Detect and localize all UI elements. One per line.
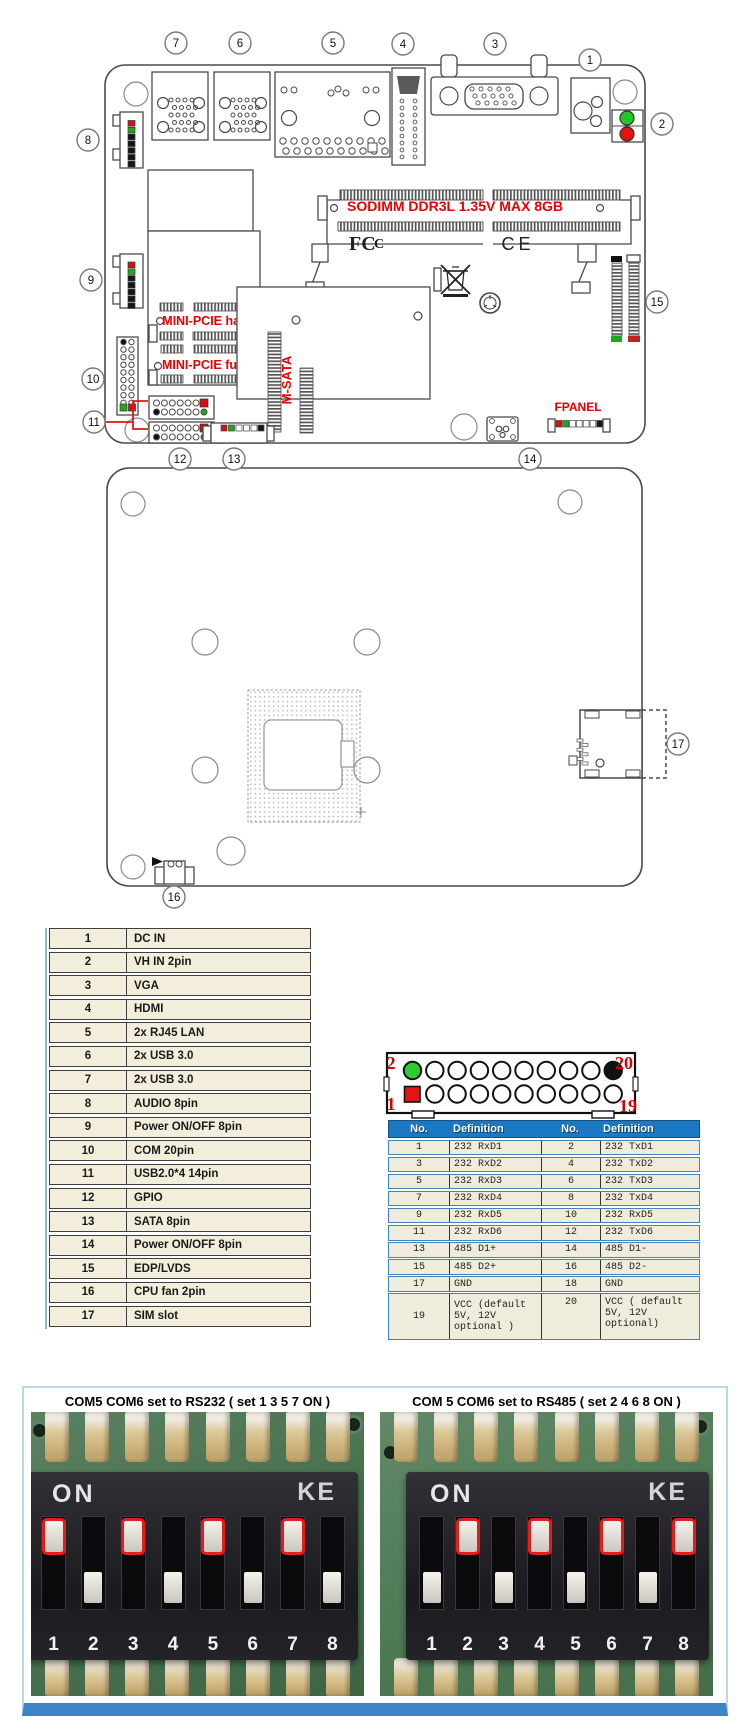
pin-table-row: 19VCC (default 5V, 12V optional )20VCC (…	[388, 1293, 700, 1340]
dip-slot-8	[320, 1516, 345, 1610]
dip-number: 8	[671, 1634, 696, 1656]
item-table-row: 17SIM slot	[49, 1306, 311, 1327]
item-number: 1	[50, 929, 126, 948]
callout-14: 14	[519, 448, 541, 470]
svg-text:14: 14	[524, 454, 537, 466]
item-name: 2x USB 3.0	[126, 1071, 310, 1090]
pin-number: 2	[541, 1141, 600, 1155]
dip-number: 8	[320, 1634, 345, 1656]
dip-rs232-title: COM5 COM6 set to RS232 ( set 1 3 5 7 ON …	[31, 1392, 364, 1412]
pin-definition: 232 RxD2	[449, 1158, 541, 1172]
pin-table-row: 15485 D2+16485 D2-	[388, 1259, 700, 1275]
dip-number: 3	[121, 1634, 146, 1656]
callout-11: 11	[83, 411, 105, 433]
dip-switch-panel: COM5 COM6 set to RS232 ( set 1 3 5 7 ON …	[22, 1386, 728, 1716]
dc-in-jack	[571, 78, 610, 133]
dip-slots	[41, 1516, 345, 1610]
solder-pin	[474, 1412, 498, 1462]
svg-text:13: 13	[228, 454, 241, 466]
svg-text:M-SATA: M-SATA	[279, 355, 294, 404]
svg-text:5: 5	[330, 38, 336, 50]
pin-table-header-no2: No.	[541, 1123, 599, 1135]
solder-pin	[206, 1658, 230, 1696]
item-name: USB2.0*4 14pin	[126, 1165, 310, 1184]
com-pin-header-diagram: 220119	[384, 1053, 638, 1118]
dip-rs485-column: COM 5 COM6 set to RS485 ( set 2 4 6 8 ON…	[380, 1392, 713, 1696]
pin-table-row: 3232 RxD24232 TxD2	[388, 1157, 700, 1173]
dip-rs232-column: COM5 COM6 set to RS232 ( set 1 3 5 7 ON …	[31, 1392, 364, 1696]
item-name: Power ON/OFF 8pin	[126, 1118, 310, 1137]
pin-definition: 232 TxD4	[600, 1192, 699, 1206]
svg-text:19: 19	[619, 1096, 637, 1116]
dip-number: 1	[419, 1634, 444, 1656]
solder-pin	[45, 1658, 69, 1696]
dip-slot-6	[599, 1516, 624, 1610]
dip-slot-2	[81, 1516, 106, 1610]
item-number: 11	[50, 1165, 126, 1184]
item-number: 9	[50, 1118, 126, 1137]
svg-text:4: 4	[400, 39, 407, 51]
solder-pin	[326, 1658, 350, 1696]
item-name: Power ON/OFF 8pin	[126, 1236, 310, 1255]
item-number: 14	[50, 1236, 126, 1255]
item-name: DC IN	[126, 929, 310, 948]
pin-number: 18	[541, 1277, 600, 1291]
solder-pin	[165, 1658, 189, 1696]
dip-number: 2	[81, 1634, 106, 1656]
pin-number: 11	[389, 1226, 449, 1240]
solder-pin	[246, 1658, 270, 1696]
cpu-bga	[248, 690, 366, 822]
dip-numbers-row: 12345678	[419, 1634, 696, 1656]
item-table-row: 13SATA 8pin	[49, 1211, 311, 1232]
dip-number: 5	[200, 1634, 225, 1656]
pin-number: 12	[541, 1226, 600, 1240]
svg-text:1: 1	[387, 1094, 396, 1114]
svg-text:3: 3	[492, 39, 498, 51]
callout-7: 7	[165, 32, 187, 54]
svg-text:C: C	[374, 237, 384, 252]
dip-on-label: ON	[52, 1480, 96, 1509]
solder-pins-row	[394, 1658, 699, 1696]
svg-text:2: 2	[659, 119, 665, 131]
power-led-block	[612, 110, 643, 142]
pin-definition: 232 RxD5	[600, 1209, 699, 1223]
dip-slot-1	[41, 1516, 66, 1610]
solder-pin	[246, 1412, 270, 1462]
pin-number: 19	[389, 1294, 449, 1339]
dip-slot-4	[161, 1516, 186, 1610]
item-number: 16	[50, 1283, 126, 1302]
item-name: CPU fan 2pin	[126, 1283, 310, 1302]
dip-slider-3	[124, 1521, 142, 1552]
svg-text:FPANEL: FPANEL	[554, 400, 601, 414]
svg-text:CE: CE	[501, 234, 534, 254]
item-name: EDP/LVDS	[126, 1259, 310, 1278]
svg-text:1: 1	[587, 55, 593, 67]
solder-pin	[286, 1412, 310, 1462]
svg-text:17: 17	[672, 739, 685, 751]
callout-3: 3	[484, 33, 506, 55]
svg-text:16: 16	[168, 892, 181, 904]
pin-number: 14	[541, 1243, 600, 1257]
dip-slot-7	[635, 1516, 660, 1610]
pin-definition: GND	[600, 1277, 699, 1291]
dip-number: 5	[563, 1634, 588, 1656]
item-table-row: 62x USB 3.0	[49, 1046, 311, 1067]
callout-16: 16	[163, 886, 185, 908]
dip-slot-5	[563, 1516, 588, 1610]
dip-switch-body: ONKE12345678	[406, 1472, 709, 1660]
solder-pin	[514, 1658, 538, 1696]
power-button	[487, 417, 518, 441]
dip-slider-2	[84, 1572, 102, 1603]
solder-pin	[85, 1658, 109, 1696]
item-table-row: 52x RJ45 LAN	[49, 1022, 311, 1043]
item-number: 4	[50, 1000, 126, 1019]
dip-slot-7	[280, 1516, 305, 1610]
pin-table-row: 11232 RxD612232 TxD6	[388, 1225, 700, 1241]
item-name: SIM slot	[126, 1307, 310, 1326]
pin-table-header-def2: Definition	[599, 1123, 699, 1135]
callout-1: 1	[579, 49, 601, 71]
callout-4: 4	[392, 33, 414, 55]
dip-number: 4	[161, 1634, 186, 1656]
item-table-row: 72x USB 3.0	[49, 1070, 311, 1091]
dip-slider-6	[244, 1572, 262, 1603]
item-number: 13	[50, 1212, 126, 1231]
item-name: COM 20pin	[126, 1141, 310, 1160]
board-bottom-outline	[107, 468, 642, 886]
dip-number: 7	[635, 1634, 660, 1656]
svg-text:8: 8	[85, 135, 91, 147]
dip-slider-7	[284, 1521, 302, 1552]
connector-index-table: 1DC IN2VH IN 2pin3VGA4HDMI52x RJ45 LAN62…	[45, 928, 311, 1329]
solder-pin	[165, 1412, 189, 1462]
sata-header	[203, 423, 274, 443]
dip-slider-2	[459, 1521, 477, 1552]
pin-definition: 232 RxD6	[449, 1226, 541, 1240]
pin-number: 8	[541, 1192, 600, 1206]
solder-pin	[434, 1412, 458, 1462]
solder-pin	[595, 1658, 619, 1696]
pin-definition: 232 RxD1	[449, 1141, 541, 1155]
pin-number: 17	[389, 1277, 449, 1291]
pin-definition: VCC (default 5V, 12V optional )	[449, 1294, 541, 1339]
svg-text:FC: FC	[349, 233, 376, 255]
svg-text:9: 9	[88, 275, 94, 287]
item-table-row: 16CPU fan 2pin	[49, 1282, 311, 1303]
item-number: 6	[50, 1047, 126, 1066]
callout-10: 10	[82, 368, 104, 390]
svg-text:12: 12	[174, 454, 187, 466]
callout-17: 17	[667, 733, 689, 755]
callout-6: 6	[229, 32, 251, 54]
vga-port	[431, 55, 558, 115]
solder-pin	[45, 1412, 69, 1462]
manual-page: SODIMM DDR3L 1.35V MAX 8GBFCCCEMINI-PCIE…	[0, 0, 750, 1729]
solder-pins-row	[394, 1412, 699, 1462]
pin-number: 3	[389, 1158, 449, 1172]
pin-table-row: 13485 D1+14485 D1-	[388, 1242, 700, 1258]
svg-text:6: 6	[237, 38, 243, 50]
pin-definition: 485 D1-	[600, 1243, 699, 1257]
pin-number: 9	[389, 1209, 449, 1223]
solder-pin	[326, 1412, 350, 1462]
dip-slider-1	[423, 1572, 441, 1603]
svg-text:10: 10	[87, 374, 100, 386]
dip-on-label: ON	[430, 1480, 474, 1509]
dip-number: 6	[240, 1634, 265, 1656]
solder-pin	[474, 1658, 498, 1696]
solder-pin	[85, 1412, 109, 1462]
pin-table-row: 5232 RxD36232 TxD3	[388, 1174, 700, 1190]
usb2-header	[149, 396, 214, 419]
dip-brand-label: KE	[297, 1478, 336, 1507]
callout-9: 9	[80, 269, 102, 291]
svg-text:SODIMM DDR3L 1.35V MAX 8GB: SODIMM DDR3L 1.35V MAX 8GB	[347, 198, 563, 214]
solder-pin	[125, 1412, 149, 1462]
solder-pin	[394, 1658, 418, 1696]
item-table-row: 3VGA	[49, 975, 311, 996]
dip-slider-8	[675, 1521, 693, 1552]
item-number: 10	[50, 1141, 126, 1160]
dip-slider-4	[164, 1572, 182, 1603]
dip-number: 6	[599, 1634, 624, 1656]
svg-text:2: 2	[387, 1053, 396, 1073]
dip-number: 1	[41, 1634, 66, 1656]
dip-slider-8	[323, 1572, 341, 1603]
sim-slot	[569, 710, 666, 778]
svg-text:11: 11	[88, 417, 100, 429]
solder-pin	[434, 1658, 458, 1696]
dip-slots	[419, 1516, 696, 1610]
callout-5: 5	[322, 32, 344, 54]
dip-slider-5	[567, 1572, 585, 1603]
pin-table-row: 17GND18GND	[388, 1276, 700, 1292]
com-20pin-header	[117, 337, 138, 415]
pin-number: 1	[389, 1141, 449, 1155]
pin-number: 15	[389, 1260, 449, 1274]
dip-rs232-photo: ONKE12345678	[31, 1412, 364, 1696]
item-number: 7	[50, 1071, 126, 1090]
solder-pin	[555, 1412, 579, 1462]
ce-mark: CE	[501, 234, 534, 254]
solder-pin	[555, 1658, 579, 1696]
pin-definition: 232 RxD4	[449, 1192, 541, 1206]
item-name: 2x USB 3.0	[126, 1047, 310, 1066]
pin-number: 10	[541, 1209, 600, 1223]
pin-number: 6	[541, 1175, 600, 1189]
item-name: SATA 8pin	[126, 1212, 310, 1231]
usb3-stack-6	[214, 72, 270, 140]
item-name: HDMI	[126, 1000, 310, 1019]
dip-slot-3	[121, 1516, 146, 1610]
pin-table-row: 7232 RxD48232 TxD4	[388, 1191, 700, 1207]
solder-pin	[394, 1412, 418, 1462]
dip-number: 4	[527, 1634, 552, 1656]
item-table-row: 14Power ON/OFF 8pin	[49, 1235, 311, 1256]
callout-13: 13	[223, 448, 245, 470]
rj45-lan-ports	[275, 72, 390, 157]
callout-12: 12	[169, 448, 191, 470]
pin-definition: 232 TxD1	[600, 1141, 699, 1155]
item-number: 5	[50, 1023, 126, 1042]
solder-pin	[635, 1658, 659, 1696]
pin-number: 13	[389, 1243, 449, 1257]
pin-definition: 232 RxD3	[449, 1175, 541, 1189]
dip-rs485-photo: ONKE12345678	[380, 1412, 713, 1696]
pin-definition: 232 TxD2	[600, 1158, 699, 1172]
item-number: 2	[50, 953, 126, 972]
pin-definition: GND	[449, 1277, 541, 1291]
item-name: VGA	[126, 976, 310, 995]
pin-table-header-row: No. Definition No. Definition	[388, 1120, 700, 1138]
dip-rs485-title: COM 5 COM6 set to RS485 ( set 2 4 6 8 ON…	[380, 1392, 713, 1412]
pin-definition: 232 TxD6	[600, 1226, 699, 1240]
pin-table-header-no: No.	[389, 1123, 449, 1135]
item-name: AUDIO 8pin	[126, 1094, 310, 1113]
item-number: 12	[50, 1189, 126, 1208]
pin-table-header-def: Definition	[449, 1123, 541, 1135]
item-table-row: 1DC IN	[49, 928, 311, 949]
pin-definition: 232 TxD3	[600, 1175, 699, 1189]
solder-pin	[595, 1412, 619, 1462]
item-name: GPIO	[126, 1189, 310, 1208]
pin-definition: 232 RxD5	[449, 1209, 541, 1223]
pin-number: 5	[389, 1175, 449, 1189]
pin-table-row: 9232 RxD510232 RxD5	[388, 1208, 700, 1224]
pin-definition: 485 D1+	[449, 1243, 541, 1257]
item-table-row: 12GPIO	[49, 1188, 311, 1209]
dip-number: 2	[455, 1634, 480, 1656]
callout-2: 2	[651, 113, 673, 135]
item-number: 8	[50, 1094, 126, 1113]
dip-slot-5	[200, 1516, 225, 1610]
dip-number: 3	[491, 1634, 516, 1656]
shield-box	[148, 170, 253, 231]
item-table-row: 9Power ON/OFF 8pin	[49, 1117, 311, 1138]
pin-definition: VCC ( default 5V, 12V optional)	[600, 1294, 699, 1339]
svg-text:7: 7	[173, 38, 179, 50]
dip-switch-body: ONKE12345678	[31, 1472, 358, 1660]
item-table-row: 15EDP/LVDS	[49, 1258, 311, 1279]
pin-definition: 485 D2+	[449, 1260, 541, 1274]
dip-slot-8	[671, 1516, 696, 1610]
dip-slot-1	[419, 1516, 444, 1610]
dip-numbers-row: 12345678	[41, 1634, 345, 1656]
item-table-row: 4HDMI	[49, 999, 311, 1020]
solder-pin	[635, 1412, 659, 1462]
fcc-logo: FCC	[349, 233, 384, 255]
callout-15: 15	[646, 291, 668, 313]
dip-number: 7	[280, 1634, 305, 1656]
item-number: 17	[50, 1307, 126, 1326]
solder-pin	[206, 1412, 230, 1462]
svg-text:MINI-PCIE full: MINI-PCIE full	[162, 358, 244, 372]
svg-text:20: 20	[615, 1053, 633, 1073]
solder-pin	[125, 1658, 149, 1696]
pin-definition: 485 D2-	[600, 1260, 699, 1274]
dip-brand-label: KE	[648, 1478, 687, 1507]
pin-number: 7	[389, 1192, 449, 1206]
dip-slider-5	[204, 1521, 222, 1552]
solder-pins-row	[45, 1412, 350, 1462]
solder-pin	[675, 1412, 699, 1462]
item-name: 2x RJ45 LAN	[126, 1023, 310, 1042]
pin-table-row: 1232 RxD12232 TxD1	[388, 1140, 700, 1156]
dip-slot-6	[240, 1516, 265, 1610]
solder-pin	[675, 1658, 699, 1696]
item-table-row: 11USB2.0*4 14pin	[49, 1164, 311, 1185]
dip-slider-6	[603, 1521, 621, 1552]
item-table-row: 8AUDIO 8pin	[49, 1093, 311, 1114]
dip-slot-3	[491, 1516, 516, 1610]
com-pin-definition-table: No. Definition No. Definition 1232 RxD12…	[388, 1120, 700, 1340]
pin-number: 4	[541, 1158, 600, 1172]
item-name: VH IN 2pin	[126, 953, 310, 972]
item-number: 15	[50, 1259, 126, 1278]
solder-pin	[286, 1658, 310, 1696]
pin-number: 16	[541, 1260, 600, 1274]
item-number: 3	[50, 976, 126, 995]
dip-slider-1	[45, 1521, 63, 1552]
solder-pin	[514, 1412, 538, 1462]
dip-slider-7	[639, 1572, 657, 1603]
dip-slider-4	[531, 1521, 549, 1552]
dip-slider-3	[495, 1572, 513, 1603]
solder-pins-row	[45, 1658, 350, 1696]
callout-8: 8	[77, 129, 99, 151]
dip-slot-2	[455, 1516, 480, 1610]
pin-number: 20	[541, 1294, 600, 1339]
svg-text:MINI-PCIE half: MINI-PCIE half	[162, 314, 248, 328]
svg-text:15: 15	[651, 297, 664, 309]
item-table-row: 2VH IN 2pin	[49, 952, 311, 973]
hdmi-port	[392, 68, 425, 165]
usb3-stack-7	[152, 72, 208, 140]
item-table-row: 10COM 20pin	[49, 1140, 311, 1161]
dip-slot-4	[527, 1516, 552, 1610]
